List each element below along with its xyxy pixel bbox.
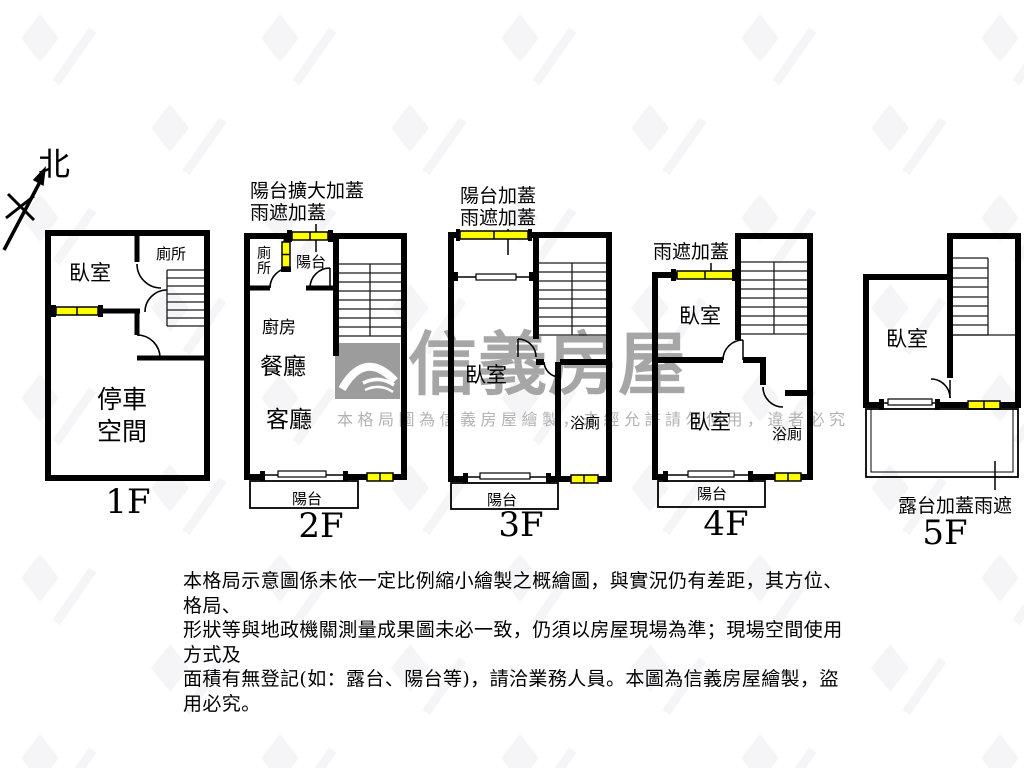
floor-label-2f: 2F <box>298 506 343 546</box>
floor-label-1f: 1F <box>105 482 150 522</box>
room-label-bedroom-5f: 臥室 <box>886 327 928 351</box>
doors-3f <box>518 339 558 377</box>
window-bottom-3f <box>571 475 598 483</box>
window-bottom-5f <box>968 401 1000 409</box>
floor-label-4f: 4F <box>703 504 748 544</box>
room-label-bedroom-3f: 臥室 <box>465 363 507 387</box>
room-label-bath-4f: 浴廁 <box>772 425 802 443</box>
floor-plan-5f: 臥室 露台加蓋雨遮 5F <box>855 228 1024 558</box>
floor-plan-3f: 陽台加蓋 雨遮加蓋 <box>448 175 628 550</box>
window-bottom-2f <box>367 473 393 481</box>
windows-3f <box>456 229 532 241</box>
stairs-1f <box>167 270 204 326</box>
disclaimer-line-3: 面積有無登記(如：露台、陽台等)，請洽業務人員。本圖為信義房屋繪製，盜用必究。 <box>183 667 855 716</box>
stairs-3f <box>538 263 606 335</box>
window-top-4f <box>671 269 737 281</box>
floor-plan-4f: 雨遮加蓋 <box>640 225 830 545</box>
disclaimer-line-1: 本格局示意圖係未依一定比例縮小繪製之概繪圖，與實況仍有差距，其方位、格局、 <box>183 569 855 618</box>
terrace-outline-5f <box>866 409 1018 490</box>
doors-5f <box>931 379 950 398</box>
room-label-parking-2: 空間 <box>97 417 147 446</box>
window-bottom-4f <box>775 473 801 481</box>
annotation-rain-cover-2f: 雨遮加蓋 <box>250 202 326 224</box>
room-label-parking-1: 停車 <box>97 385 147 414</box>
room-label-bath-3f: 浴廁 <box>570 414 600 432</box>
stairs-4f <box>741 262 807 334</box>
floor-plan-2f: 陽台擴大加蓋 雨遮加蓋 <box>240 170 440 550</box>
disclaimer-text: 本格局示意圖係未依一定比例縮小繪製之概繪圖，與實況仍有差距，其方位、格局、 形狀… <box>183 569 855 717</box>
annotation-balcony-expand-2f: 陽台擴大加蓋 <box>250 180 364 202</box>
floor-plan-1f: 臥室 廁所 停車 空間 1F <box>40 228 240 528</box>
room-label-kitchen-2f: 廚房 <box>262 317 296 338</box>
room-label-balcony-4f: 陽台 <box>697 485 727 503</box>
room-label-bedroom-1f: 臥室 <box>69 261 111 285</box>
floor-label-3f: 3F <box>498 505 543 545</box>
annotation-balcony-cover-3f: 陽台加蓋 <box>460 185 536 207</box>
room-label-bedroom-4f: 臥室 <box>689 410 731 434</box>
sliding-door-2f <box>260 471 348 481</box>
stairs-5f <box>953 258 1015 335</box>
window-1f <box>51 305 103 317</box>
doors-2f <box>270 268 330 288</box>
doors-1f <box>137 264 167 358</box>
annotation-rain-cover-4f: 雨遮加蓋 <box>653 241 729 263</box>
room-label-toilet-1f: 廁所 <box>156 245 186 263</box>
room-label-toilet-2f-2: 所 <box>257 261 271 277</box>
stairs-2f <box>339 264 401 336</box>
room-label-toilet-2f-1: 廁 <box>257 245 271 262</box>
annotation-rain-cover-3f: 雨遮加蓋 <box>460 207 536 229</box>
floor-plan-sheet: 信義房屋 本格局圖為信義房屋繪製，未經允許請勿使用，違者必究 北 <box>0 0 1024 768</box>
doors-4f <box>723 340 783 407</box>
room-label-living-2f: 客廳 <box>266 407 312 433</box>
room-label-dining-2f: 餐廳 <box>260 354 306 380</box>
balcony-divider-3f <box>452 272 535 281</box>
floor-label-5f: 5F <box>922 513 967 553</box>
disclaimer-line-2: 形狀等與地政機關測量成果圖未必一致，仍須以房屋現場為準；現場空間使用方式及 <box>183 618 855 667</box>
room-label-bedroom-top-4f: 臥室 <box>679 304 721 328</box>
room-label-balcony-top-2f: 陽台 <box>296 253 326 271</box>
sliding-door-3f <box>463 473 551 483</box>
